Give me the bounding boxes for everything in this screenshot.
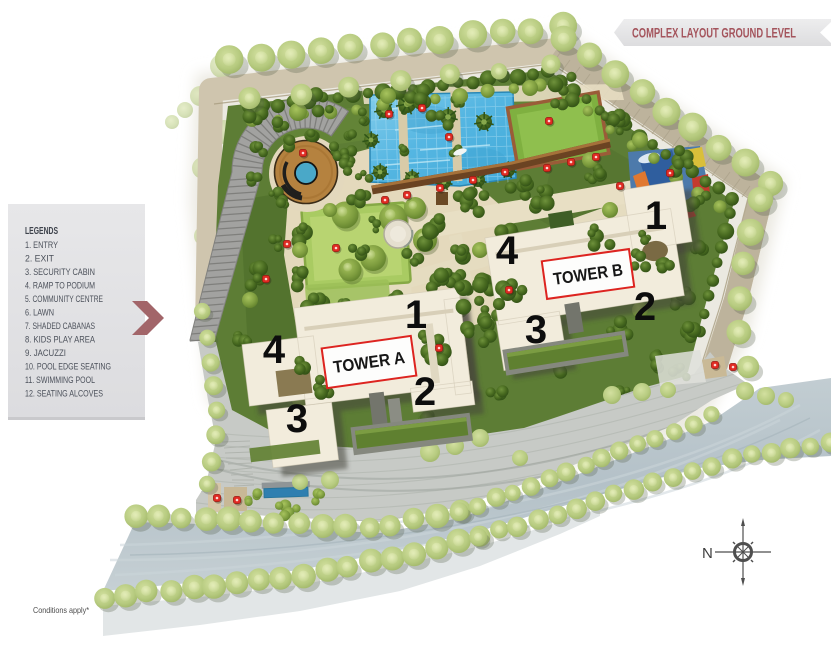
svg-text:4: 4 <box>496 229 519 273</box>
svg-text:9. JACUZZI: 9. JACUZZI <box>25 348 66 358</box>
svg-text:2: 2 <box>634 285 656 329</box>
svg-text:3: 3 <box>525 308 547 352</box>
svg-text:3: 3 <box>286 397 308 441</box>
svg-text:2: 2 <box>414 370 436 414</box>
svg-text:3. SECURITY CABIN: 3. SECURITY CABIN <box>25 267 95 277</box>
svg-text:Conditions apply*: Conditions apply* <box>33 605 90 615</box>
svg-text:1: 1 <box>645 194 667 238</box>
svg-text:5. COMMUNITY CENTRE: 5. COMMUNITY CENTRE <box>25 294 103 304</box>
svg-text:10. POOL EDGE SEATING: 10. POOL EDGE SEATING <box>25 362 111 372</box>
svg-text:N: N <box>702 545 713 562</box>
svg-text:8. KIDS PLAY AREA: 8. KIDS PLAY AREA <box>25 335 95 345</box>
svg-text:6. LAWN: 6. LAWN <box>25 308 54 318</box>
svg-text:1: 1 <box>405 293 427 337</box>
svg-text:COMPLEX LAYOUT GROUND LEVEL: COMPLEX LAYOUT GROUND LEVEL <box>632 26 796 41</box>
svg-text:1. ENTRY: 1. ENTRY <box>25 240 58 250</box>
svg-text:4. RAMP TO PODIUM: 4. RAMP TO PODIUM <box>25 281 95 291</box>
svg-text:LEGENDS: LEGENDS <box>25 226 58 237</box>
svg-text:12. SEATING ALCOVES: 12. SEATING ALCOVES <box>25 389 103 399</box>
svg-text:11. SWIMMING POOL: 11. SWIMMING POOL <box>25 375 95 385</box>
svg-text:2. EXIT: 2. EXIT <box>25 254 54 264</box>
svg-text:7. SHADED CABANAS: 7. SHADED CABANAS <box>25 321 95 331</box>
svg-text:4: 4 <box>263 328 286 372</box>
